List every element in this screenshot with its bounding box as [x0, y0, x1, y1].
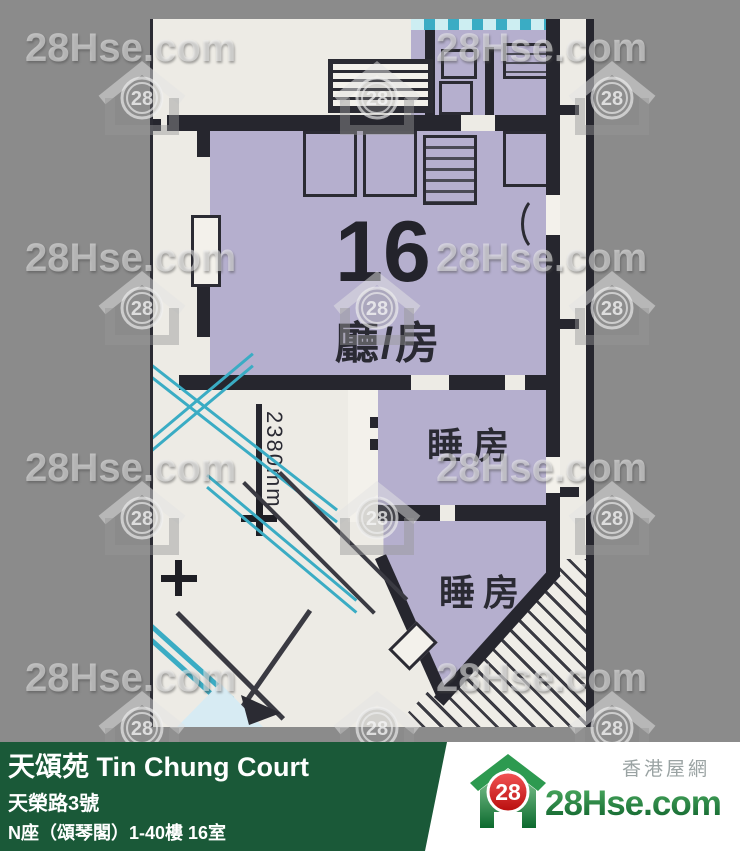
svg-text:28: 28 [601, 298, 623, 320]
bedroom2-label: 睡房 [403, 564, 563, 616]
28hse-logo-text[interactable]: 28Hse.com [545, 784, 721, 824]
svg-text:28: 28 [495, 779, 521, 805]
bedroom-door-column [348, 390, 378, 522]
floor-plan-image: 16 廳/房 睡房 睡房 2380mm [150, 19, 594, 727]
stove-fixture [423, 135, 477, 205]
wall [378, 505, 440, 521]
door-opening [546, 457, 560, 493]
sink-fixture [363, 131, 417, 197]
estate-address: 天榮路3號 [0, 787, 460, 816]
info-bar: 天頌苑 Tin Chung Court 天榮路3號 N座（頌琴閣）1-40樓 1… [0, 742, 740, 851]
wall [153, 119, 161, 131]
wall [455, 505, 560, 521]
sink-fixture [303, 131, 357, 197]
kitchen-fixture [503, 43, 549, 79]
28hse-logo-house-icon[interactable]: 28 [468, 752, 548, 830]
unit-number: 16 [293, 209, 473, 295]
wall [197, 131, 210, 157]
site-tagline: 香港屋網 [622, 754, 710, 781]
wall-tick [560, 105, 579, 115]
balcony-door [191, 215, 221, 287]
svg-text:28: 28 [601, 508, 623, 530]
svg-text:28: 28 [601, 88, 623, 110]
living-room-label: 廳/房 [288, 307, 488, 371]
corridor-line [239, 609, 312, 710]
bedroom1-label: 睡房 [393, 417, 553, 469]
survey-cross [175, 560, 182, 596]
property-info-panel: 天頌苑 Tin Chung Court 天榮路3號 N座（頌琴閣）1-40樓 1… [0, 742, 460, 851]
bathroom-fixture [503, 131, 549, 187]
wall [197, 287, 210, 337]
door-opening [546, 195, 560, 235]
wall [485, 47, 494, 115]
block-floor-unit: N座（頌琴閣）1-40樓 16室 [0, 819, 460, 845]
wall-tick [560, 319, 579, 329]
screenshot-root: 16 廳/房 睡房 睡房 2380mm [0, 0, 740, 851]
bathroom-fixture [441, 49, 477, 79]
window-grille [328, 59, 433, 113]
wall [167, 115, 461, 131]
wall [449, 375, 505, 390]
svg-text:28: 28 [601, 718, 623, 740]
bathroom-fixture [439, 81, 473, 115]
wall-tick [560, 487, 579, 497]
estate-name: 天頌苑 Tin Chung Court [0, 742, 460, 784]
